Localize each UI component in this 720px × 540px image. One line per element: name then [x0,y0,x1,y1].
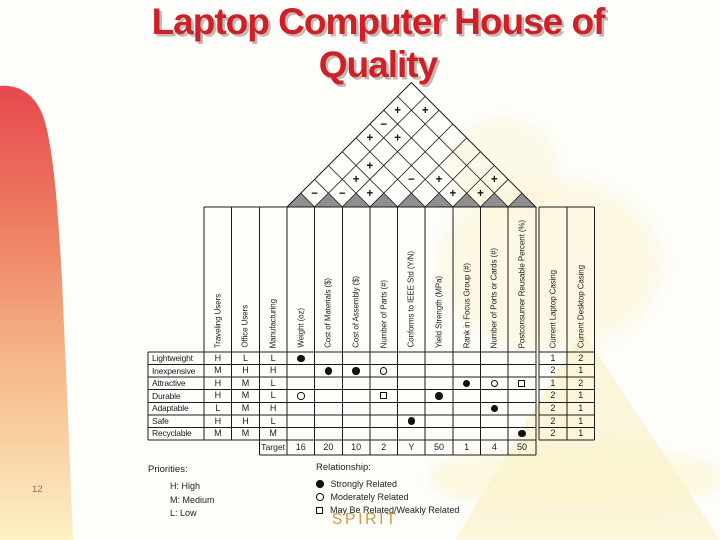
relationship-legend-item: Moderately Related [316,492,459,502]
title-line-1: Laptop Computer House of [36,0,720,43]
roof-correlation-symbol: − [311,188,318,200]
footer-text: SPIRIT [10,511,720,529]
priority-legend-item: M: Medium [170,495,215,505]
slide: Laptop Computer House of Quality ++−++++… [0,0,720,540]
page-number: 12 [32,484,43,495]
roof-correlation-symbol: − [380,119,387,131]
relationship-legend-label: Strongly Related [331,479,398,489]
roof-correlation-symbol: − [339,188,346,200]
priorities-legend: Priorities: H: High M: Medium L: Low [148,464,215,518]
roof-correlation-symbol: + [353,174,360,186]
title-line-2: Quality [36,43,720,86]
relationship-legend-item: Strongly Related [316,479,459,489]
roof-correlation-symbol: + [422,105,429,117]
roof-correlation-symbol: + [449,188,456,200]
moderately-related-icon [316,493,324,501]
roof-correlation-symbol: + [367,160,374,172]
roof-correlation-symbol: + [367,133,374,145]
roof-outline [287,83,536,207]
slide-title: Laptop Computer House of Quality [36,0,720,86]
priority-legend-item: H: High [170,481,215,491]
roof-correlation-symbol: + [367,188,374,200]
roof-correlation-symbol: + [394,133,401,145]
roof-correlation-symbol: − [408,174,415,186]
roof-correlation-symbol: + [477,188,484,200]
relationship-legend-label: Moderately Related [331,492,409,502]
relationship-legend-title: Relationship: [316,462,459,473]
roof-correlation-symbol: + [436,174,443,186]
strongly-related-icon [316,480,324,488]
roof-correlation-symbol: + [394,105,401,117]
relationship-legend: Relationship: Strongly Related Moderatel… [316,462,459,515]
priorities-legend-title: Priorities: [148,464,215,475]
roof-correlation-symbol: + [491,174,498,186]
